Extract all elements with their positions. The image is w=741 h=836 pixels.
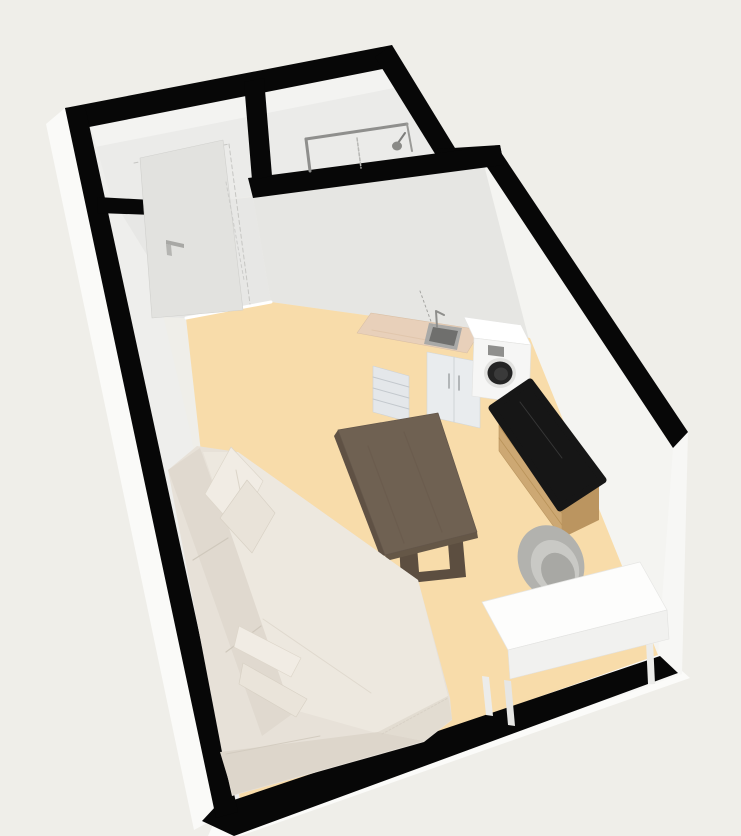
floor-plan-3d-view <box>0 0 741 836</box>
shower-head-icon[interactable] <box>392 142 402 151</box>
floor-plan-stage <box>0 0 741 836</box>
washer-control-panel <box>488 345 504 357</box>
kitchen-drawer-unit[interactable] <box>373 366 409 422</box>
washer-door-glass <box>494 368 508 381</box>
